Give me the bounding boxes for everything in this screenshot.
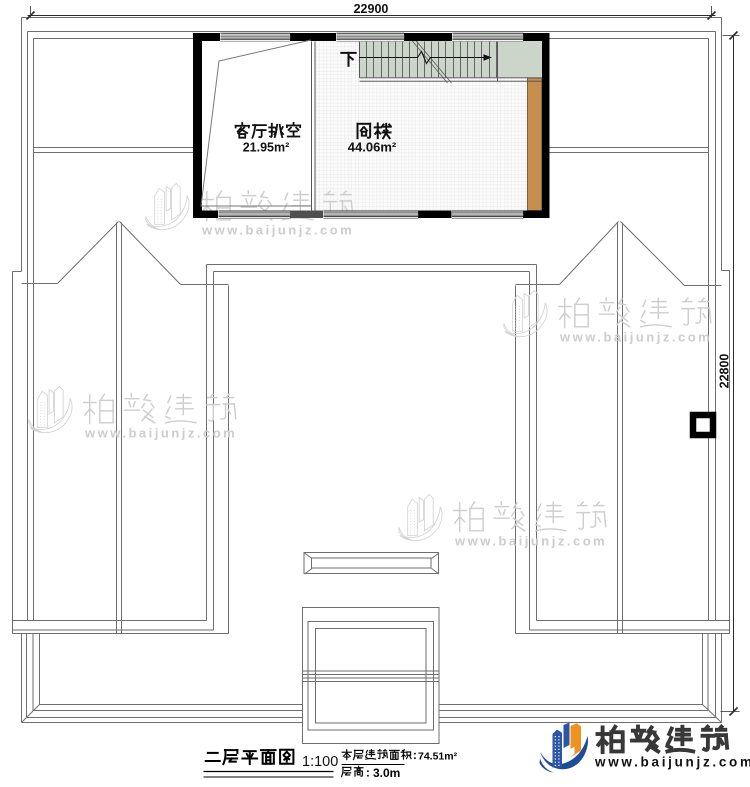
svg-text:www.baijunjz.com: www.baijunjz.com <box>594 755 750 770</box>
svg-text:1:100: 1:100 <box>302 754 338 770</box>
svg-text:www.baijunjz.com: www.baijunjz.com <box>84 426 237 441</box>
svg-text:22800: 22800 <box>718 354 732 389</box>
svg-text:www.baijunjz.com: www.baijunjz.com <box>201 223 354 238</box>
svg-text::: : <box>366 768 370 780</box>
svg-text::: : <box>413 750 417 762</box>
svg-text:3.0m: 3.0m <box>373 766 400 780</box>
svg-text:22900: 22900 <box>354 2 389 16</box>
svg-text:www.baijunjz.com: www.baijunjz.com <box>559 330 712 345</box>
svg-text:44.06m²: 44.06m² <box>348 140 397 155</box>
svg-text:www.baijunjz.com: www.baijunjz.com <box>454 534 607 549</box>
svg-text:21.95m²: 21.95m² <box>243 141 290 155</box>
svg-text:74.51m²: 74.51m² <box>418 751 458 763</box>
